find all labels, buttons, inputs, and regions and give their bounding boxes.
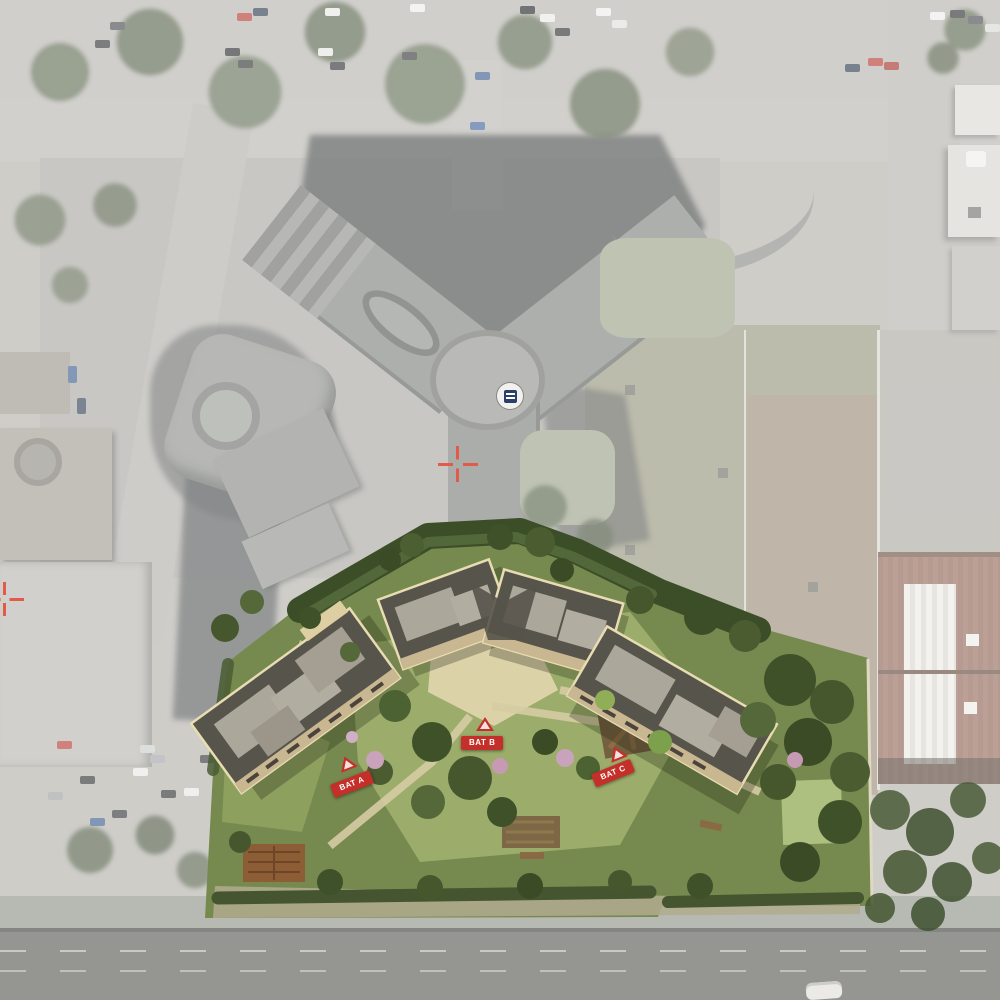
survey-cross-center: [438, 446, 478, 482]
building-pictogram-icon: [504, 390, 517, 403]
cross-icon: [0, 598, 24, 601]
offsite-trees-southeast: [865, 782, 1000, 931]
marker-bat-b[interactable]: BAT B: [461, 736, 503, 750]
arrow-inner: [611, 748, 623, 759]
arrow-inner: [341, 758, 353, 769]
survey-cross-left-edge: [0, 582, 24, 616]
roundabout-sign: [497, 383, 523, 409]
wooden-deck: [243, 844, 305, 882]
arrow-inner: [480, 721, 490, 729]
arrow-up-icon: [476, 717, 494, 731]
marker-bat-b-label: BAT B: [469, 738, 495, 747]
development-render: [0, 0, 1000, 1000]
cross-icon: [438, 463, 478, 466]
aerial-view: BAT A BAT B BAT C: [0, 0, 1000, 1000]
bench: [520, 852, 544, 859]
white-vehicle: [805, 981, 842, 1000]
